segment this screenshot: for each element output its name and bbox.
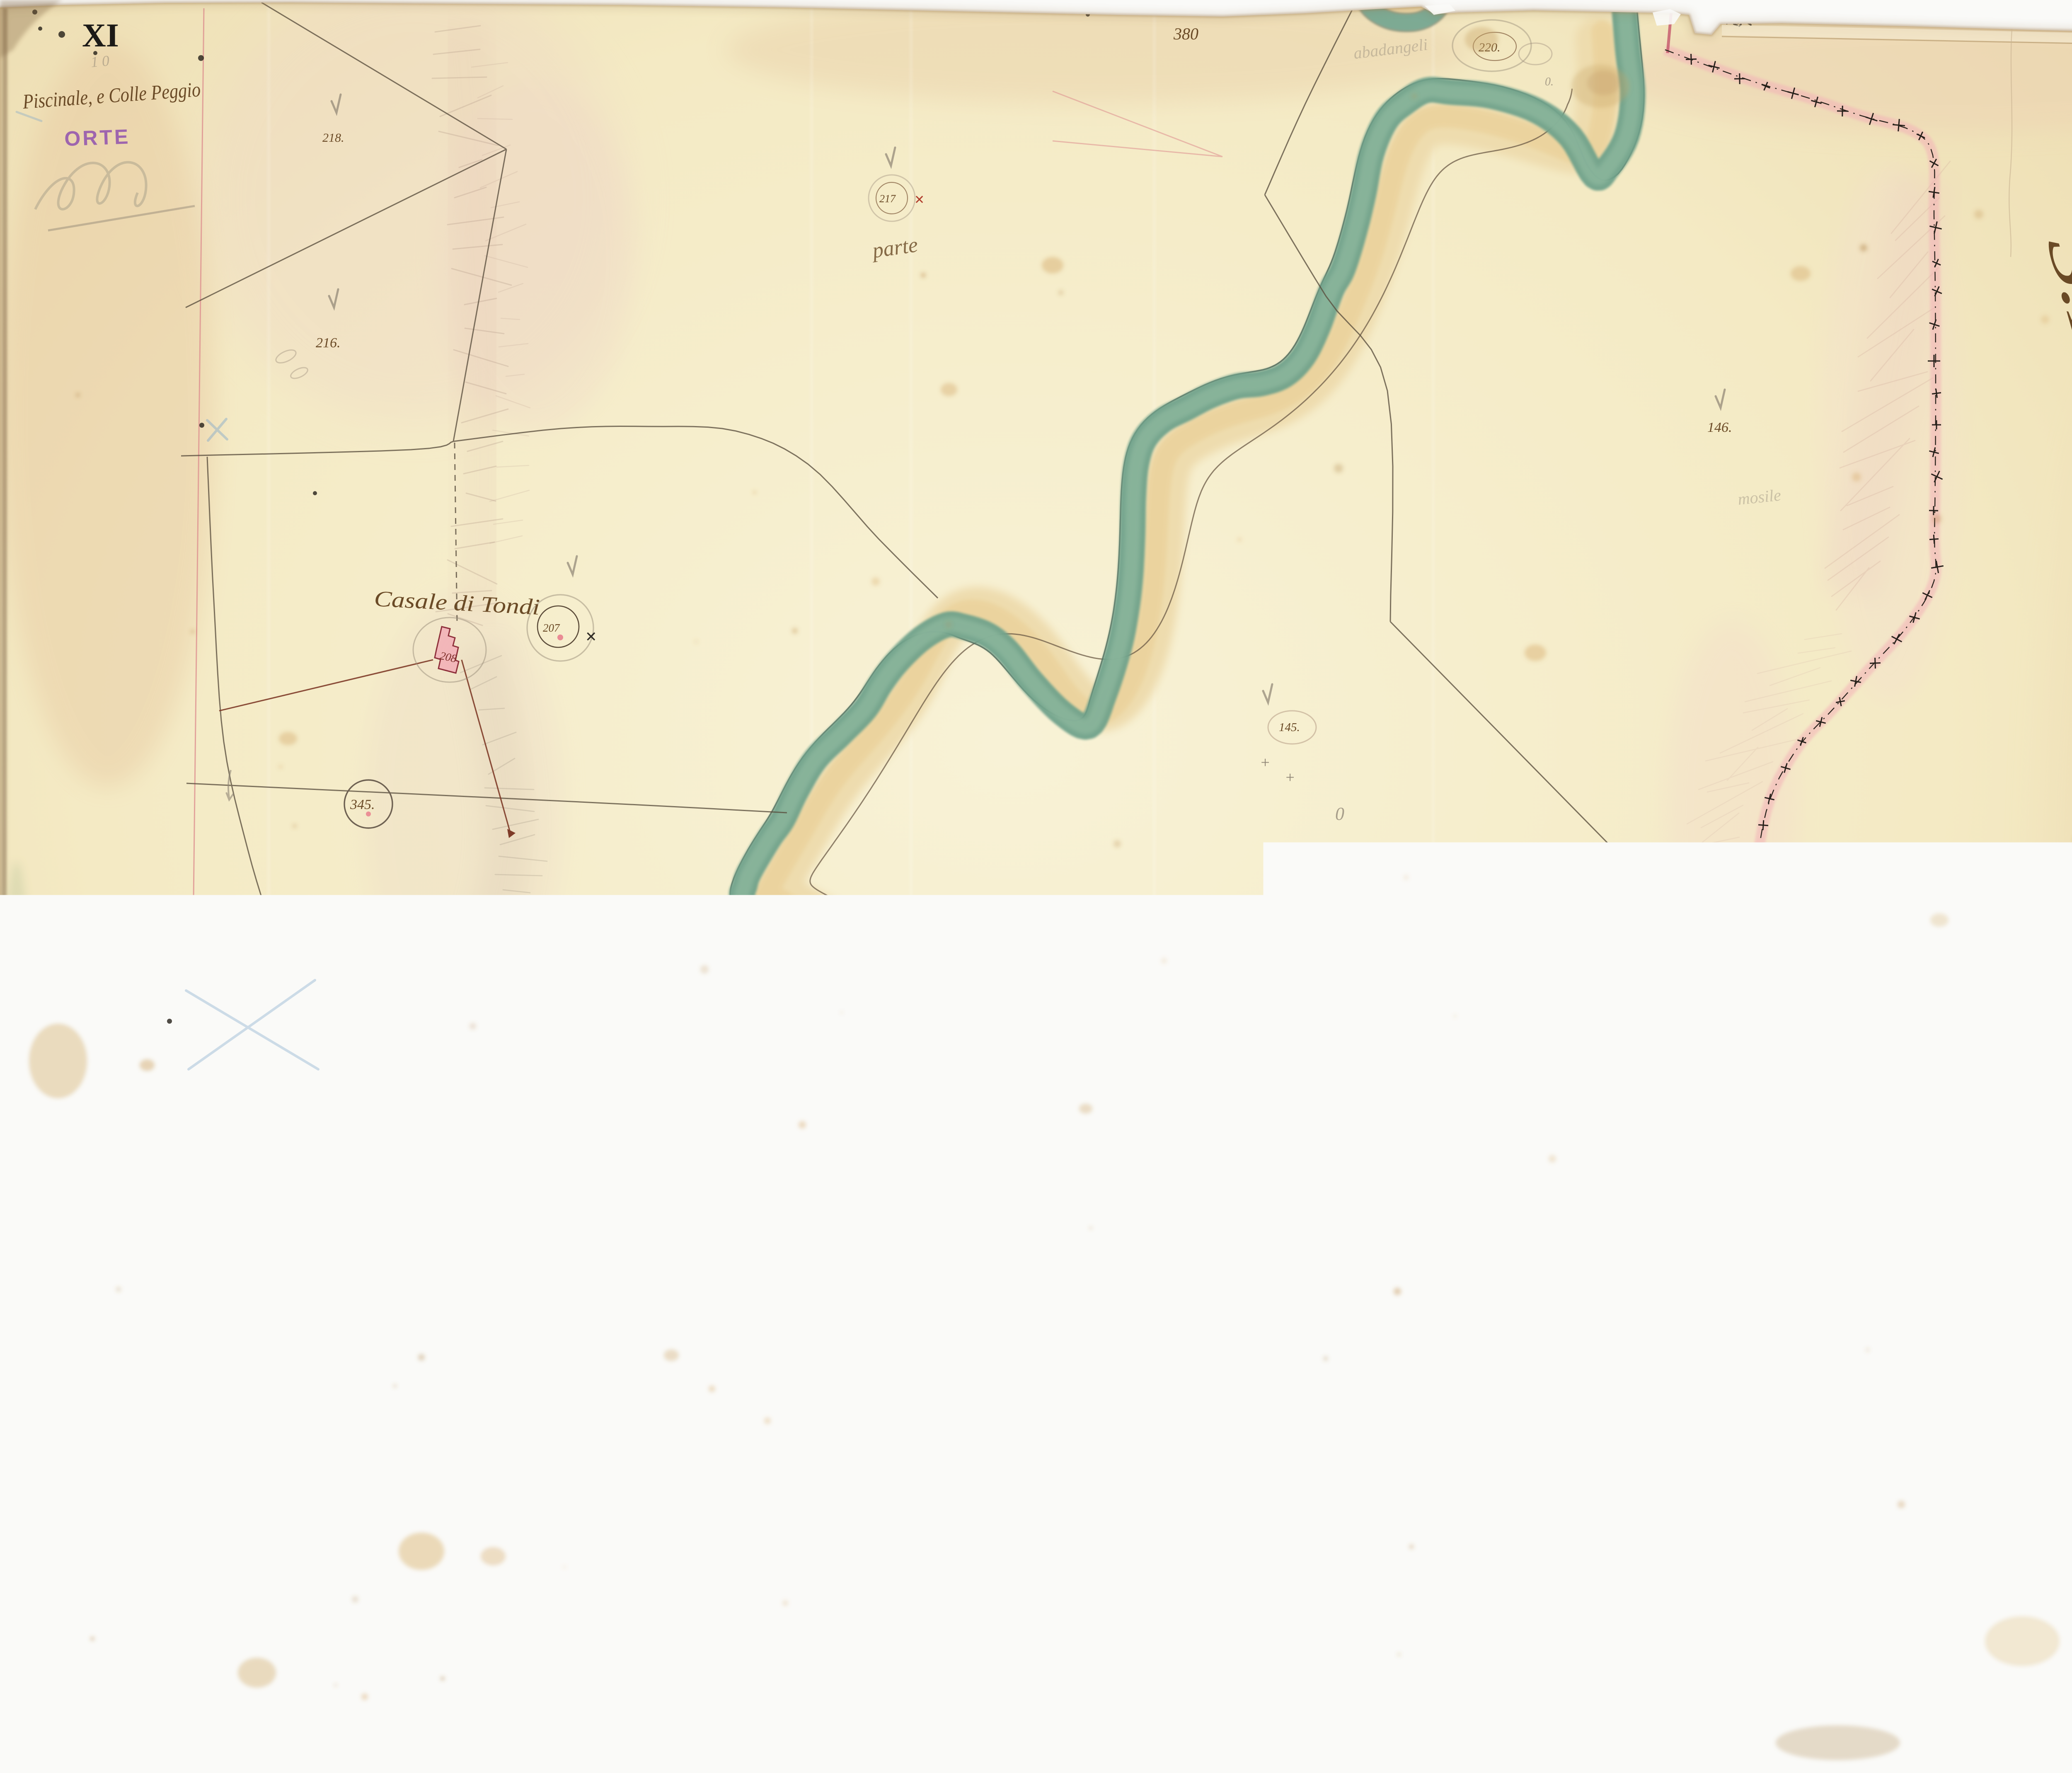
svg-text:374.: 374. bbox=[1552, 1497, 1582, 1517]
svg-text:0: 0 bbox=[1292, 1593, 1299, 1608]
svg-text:143.: 143. bbox=[1538, 1285, 1560, 1298]
svg-text:218.: 218. bbox=[322, 131, 344, 145]
svg-text:137.: 137. bbox=[1294, 1516, 1313, 1528]
svg-text:141.: 141. bbox=[1434, 1043, 1455, 1056]
svg-text:+: + bbox=[1285, 769, 1295, 786]
svg-text:ORTE: ORTE bbox=[64, 125, 131, 150]
svg-text:✕: ✕ bbox=[585, 630, 597, 645]
svg-text:217: 217 bbox=[879, 193, 896, 205]
svg-text:✕: ✕ bbox=[914, 193, 925, 207]
svg-text:+: + bbox=[1439, 1075, 1448, 1090]
svg-text:A: A bbox=[1651, 1042, 1660, 1056]
svg-text:0.: 0. bbox=[1545, 75, 1554, 88]
svg-text:137: 137 bbox=[1289, 1456, 1338, 1494]
svg-text:174.: 174. bbox=[237, 1442, 259, 1456]
svg-text:145.: 145. bbox=[1279, 721, 1300, 734]
svg-text:345.: 345. bbox=[350, 797, 375, 812]
svg-text:377: 377 bbox=[1552, 1393, 1577, 1411]
svg-text:146.: 146. bbox=[1707, 420, 1732, 435]
svg-text:138: 138 bbox=[879, 1459, 926, 1495]
svg-text:O: O bbox=[1408, 1146, 1421, 1165]
svg-text:+: + bbox=[932, 1501, 942, 1518]
svg-text:207: 207 bbox=[543, 622, 560, 634]
svg-text:+: + bbox=[1260, 754, 1271, 771]
svg-text:144: 144 bbox=[1135, 1169, 1164, 1192]
svg-text:138.: 138. bbox=[928, 1487, 949, 1500]
svg-text:142.: 142. bbox=[1642, 1013, 1664, 1027]
svg-text:XI: XI bbox=[82, 17, 119, 54]
svg-text:0: 0 bbox=[1335, 804, 1344, 824]
svg-text:206: 206 bbox=[604, 1128, 624, 1143]
svg-text:216.: 216. bbox=[316, 335, 341, 351]
svg-text:0: 0 bbox=[1389, 1167, 1396, 1183]
svg-text:139.: 139. bbox=[1290, 1325, 1309, 1338]
svg-text:380: 380 bbox=[1173, 24, 1198, 43]
svg-text:A: A bbox=[1372, 1140, 1381, 1155]
svg-text:376: 376 bbox=[1440, 1342, 1474, 1368]
svg-text:✕: ✕ bbox=[1322, 1325, 1332, 1338]
svg-text:375: 375 bbox=[1593, 1421, 1622, 1443]
svg-text:140: 140 bbox=[1370, 1116, 1386, 1127]
svg-text:1 0: 1 0 bbox=[90, 52, 110, 70]
